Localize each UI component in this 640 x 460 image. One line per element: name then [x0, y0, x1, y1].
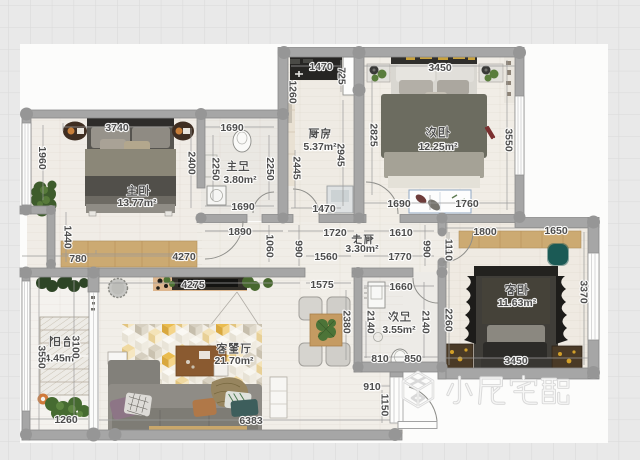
svg-text:2140: 2140 — [365, 310, 377, 334]
svg-text:3370: 3370 — [578, 280, 590, 304]
svg-text:2945: 2945 — [335, 143, 347, 167]
svg-text:990: 990 — [293, 240, 305, 258]
svg-text:3.30m²: 3.30m² — [345, 243, 379, 255]
svg-text:1260: 1260 — [287, 80, 299, 104]
svg-text:3450: 3450 — [428, 62, 452, 74]
svg-text:1770: 1770 — [388, 251, 412, 263]
svg-text:1960: 1960 — [36, 146, 48, 170]
svg-text:1060: 1060 — [264, 234, 276, 258]
svg-text:850: 850 — [404, 353, 422, 365]
svg-text:1720: 1720 — [323, 227, 347, 239]
svg-text:2380: 2380 — [341, 310, 353, 334]
svg-text:1890: 1890 — [228, 226, 252, 238]
svg-text:780: 780 — [69, 253, 87, 265]
svg-text:3100: 3100 — [70, 335, 82, 359]
svg-text:1110: 1110 — [443, 239, 455, 261]
svg-text:1690: 1690 — [387, 198, 411, 210]
svg-text:1690: 1690 — [231, 201, 255, 213]
svg-text:725: 725 — [336, 67, 348, 85]
svg-text:990: 990 — [421, 240, 433, 258]
svg-text:2825: 2825 — [368, 123, 380, 147]
svg-text:1260: 1260 — [54, 414, 78, 426]
svg-text:3740: 3740 — [105, 122, 129, 134]
svg-text:2260: 2260 — [443, 308, 455, 332]
svg-text:3550: 3550 — [503, 128, 515, 152]
svg-text:1660: 1660 — [389, 281, 413, 293]
svg-text:1610: 1610 — [389, 227, 413, 239]
svg-text:810: 810 — [371, 353, 389, 365]
svg-text:1760: 1760 — [455, 198, 479, 210]
svg-text:2140: 2140 — [420, 310, 432, 334]
svg-text:2400: 2400 — [186, 151, 198, 175]
svg-text:1690: 1690 — [220, 122, 244, 134]
svg-text:1800: 1800 — [473, 226, 497, 238]
svg-text:4275: 4275 — [181, 279, 205, 291]
svg-text:11.63m²: 11.63m² — [498, 297, 537, 309]
svg-text:12.25m²: 12.25m² — [418, 141, 458, 153]
svg-text:910: 910 — [363, 381, 381, 393]
svg-text:6383: 6383 — [239, 415, 263, 427]
svg-text:1440: 1440 — [62, 225, 74, 249]
svg-text:2250: 2250 — [264, 157, 276, 181]
svg-text:1575: 1575 — [310, 279, 334, 291]
svg-text:2250: 2250 — [210, 157, 222, 181]
svg-text:5.37m²: 5.37m² — [303, 141, 337, 153]
svg-text:3.55m²: 3.55m² — [382, 324, 416, 336]
svg-text:2445: 2445 — [291, 156, 303, 180]
svg-text:3550: 3550 — [36, 345, 48, 369]
svg-text:1150: 1150 — [379, 394, 391, 417]
svg-text:13.77m²: 13.77m² — [117, 197, 157, 209]
svg-text:3.80m²: 3.80m² — [223, 174, 257, 186]
svg-text:4270: 4270 — [172, 251, 196, 263]
svg-text:1470: 1470 — [312, 203, 336, 215]
svg-text:1560: 1560 — [314, 251, 338, 263]
svg-text:1470: 1470 — [309, 61, 333, 73]
svg-text:3450: 3450 — [504, 355, 528, 367]
svg-text:1650: 1650 — [544, 225, 568, 237]
svg-text:21.70m²: 21.70m² — [214, 355, 254, 367]
